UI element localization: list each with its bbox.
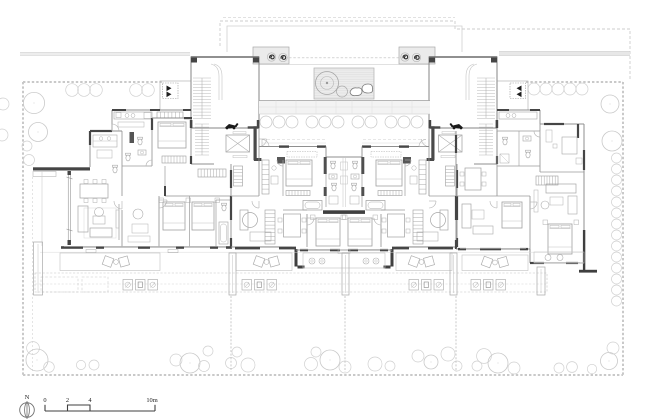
svg-text:10m: 10m (146, 397, 157, 404)
svg-text:0: 0 (43, 397, 46, 404)
svg-text:N: N (25, 394, 30, 401)
svg-text:2: 2 (66, 397, 69, 404)
